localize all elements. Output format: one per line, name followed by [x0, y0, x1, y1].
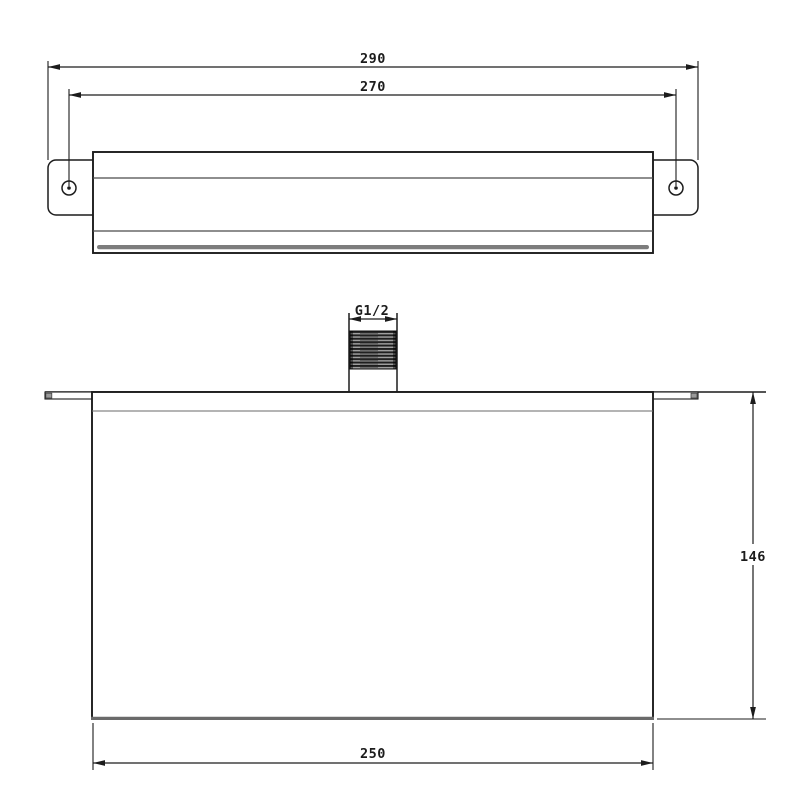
threaded-inlet: G1/2	[349, 303, 397, 392]
housing-outline	[92, 392, 653, 719]
thread-hatching	[350, 331, 396, 369]
top-view: 290 270	[48, 51, 698, 253]
technical-drawing: 290 270 G1/2	[0, 0, 810, 810]
dimension-label-thread: G1/2	[355, 303, 390, 319]
hole-center-mark-right	[674, 186, 678, 190]
dimension-label-290: 290	[360, 51, 386, 67]
front-view: G1/2 146 250	[45, 303, 768, 770]
plate-tab-left-cap	[46, 393, 52, 398]
water-outlet-slot	[97, 245, 649, 249]
spout-body-outline	[93, 152, 653, 253]
dimension-label-146: 146	[740, 549, 766, 565]
thread-shade-left	[350, 331, 353, 369]
thread-shade-right	[393, 331, 396, 369]
dimension-body-width: 250	[93, 723, 653, 770]
hole-center-mark-left	[67, 186, 71, 190]
dimension-overall-width: 290	[48, 51, 698, 160]
dimension-height: 146	[657, 392, 768, 719]
dimension-label-270: 270	[360, 79, 386, 95]
plate-tab-right-cap	[691, 393, 697, 398]
dimension-label-250: 250	[360, 746, 386, 762]
